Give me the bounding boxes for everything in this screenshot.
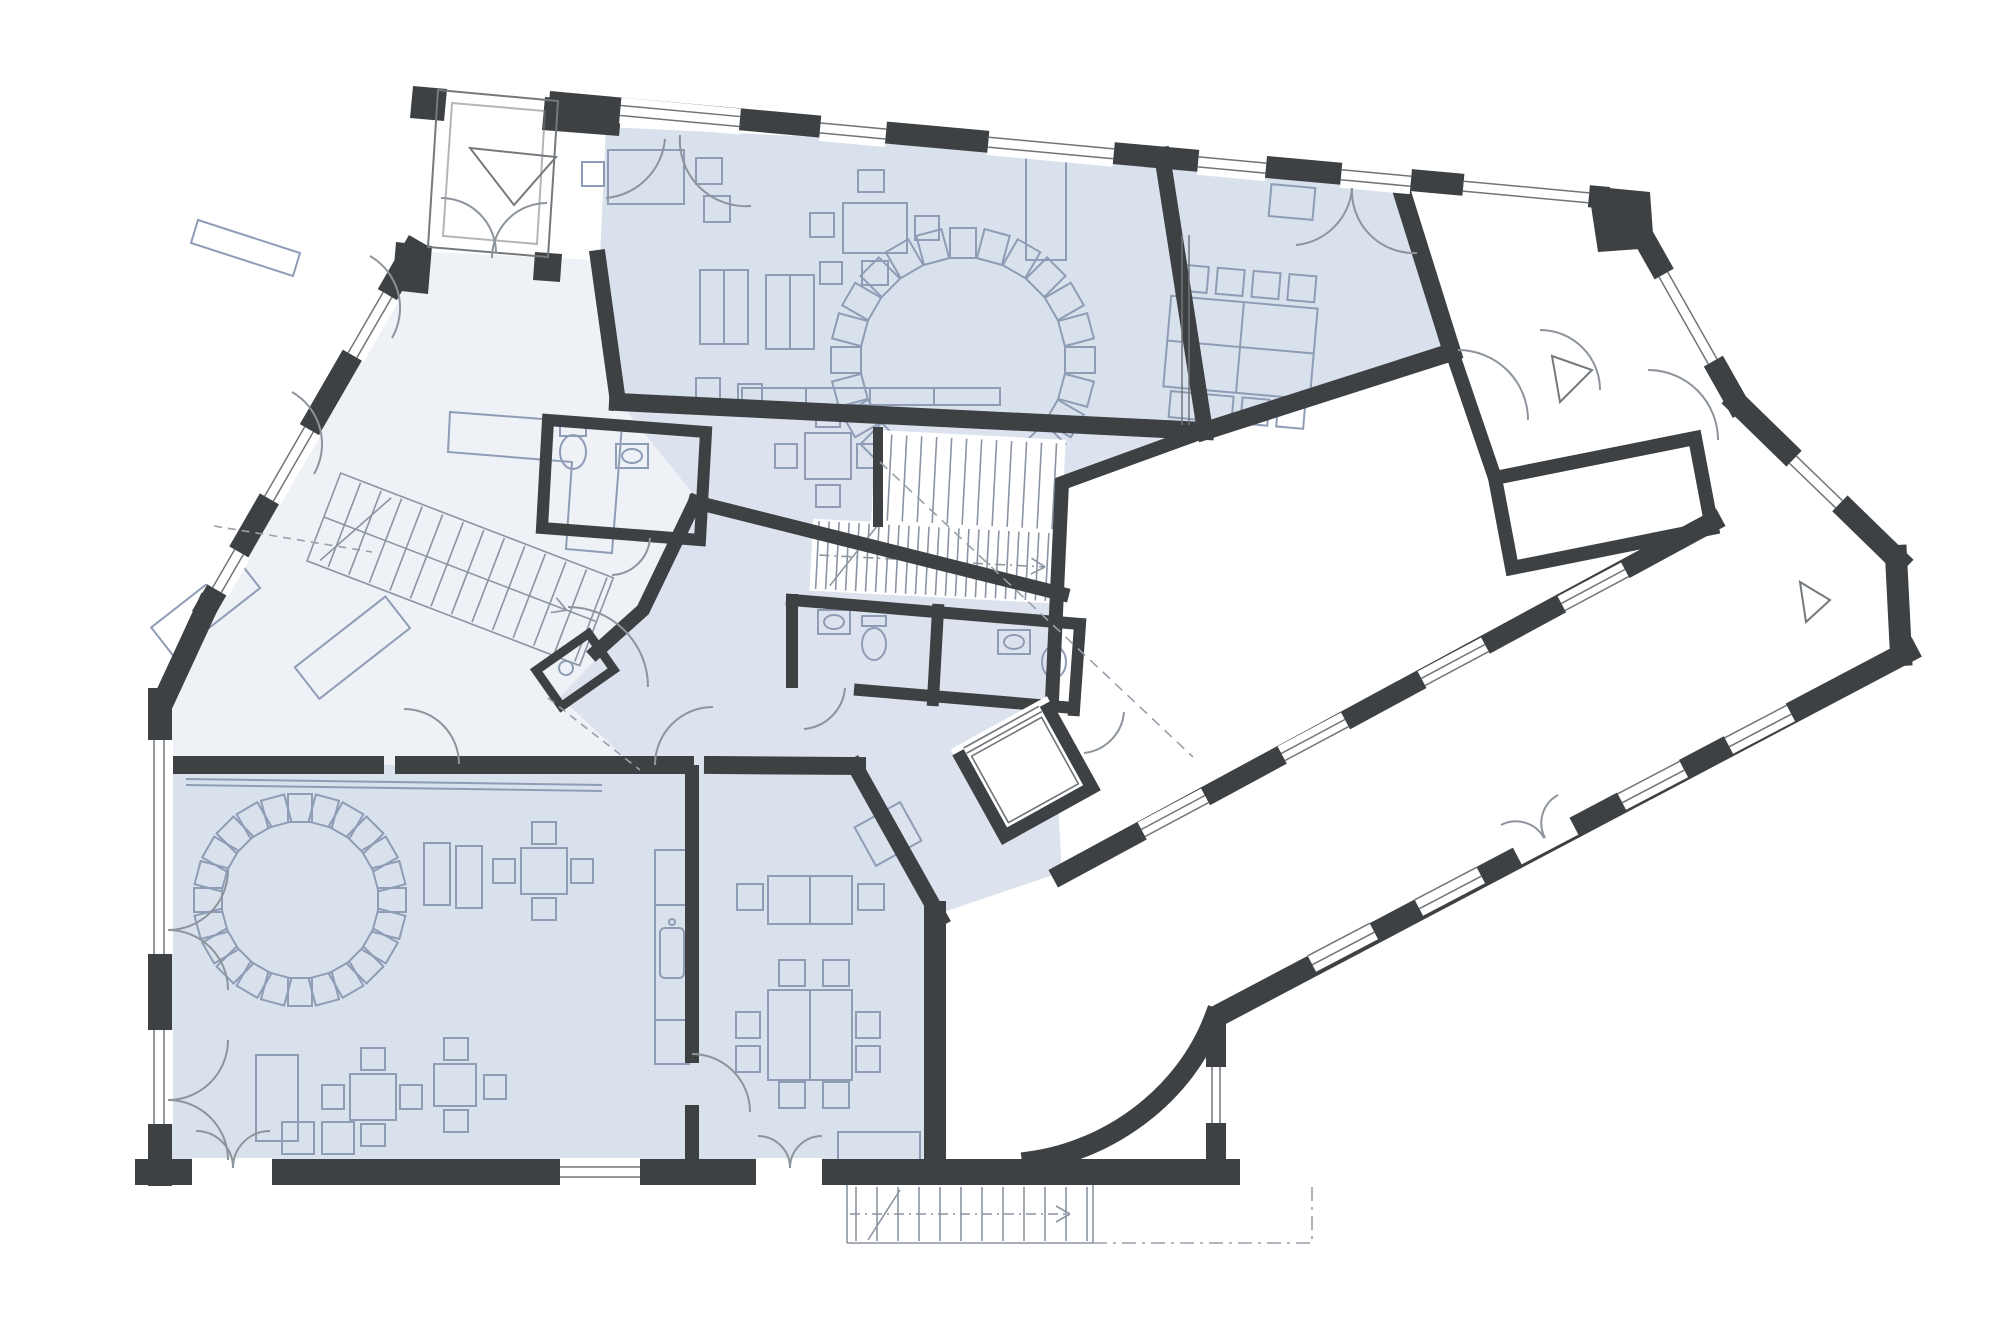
- window: [145, 1030, 173, 1124]
- room-hall: [600, 127, 1205, 432]
- window: [145, 740, 173, 954]
- window: [560, 1158, 640, 1188]
- floor-plan-drawing: [0, 0, 2000, 1333]
- wall-grouprooms-top: [165, 765, 857, 766]
- block-top-right-corner: [1588, 186, 1654, 252]
- floor-plan-page: [0, 0, 2000, 1333]
- window: [1204, 1067, 1228, 1123]
- block-vestibule-bl: [392, 242, 432, 294]
- room-group-west: [160, 765, 692, 1172]
